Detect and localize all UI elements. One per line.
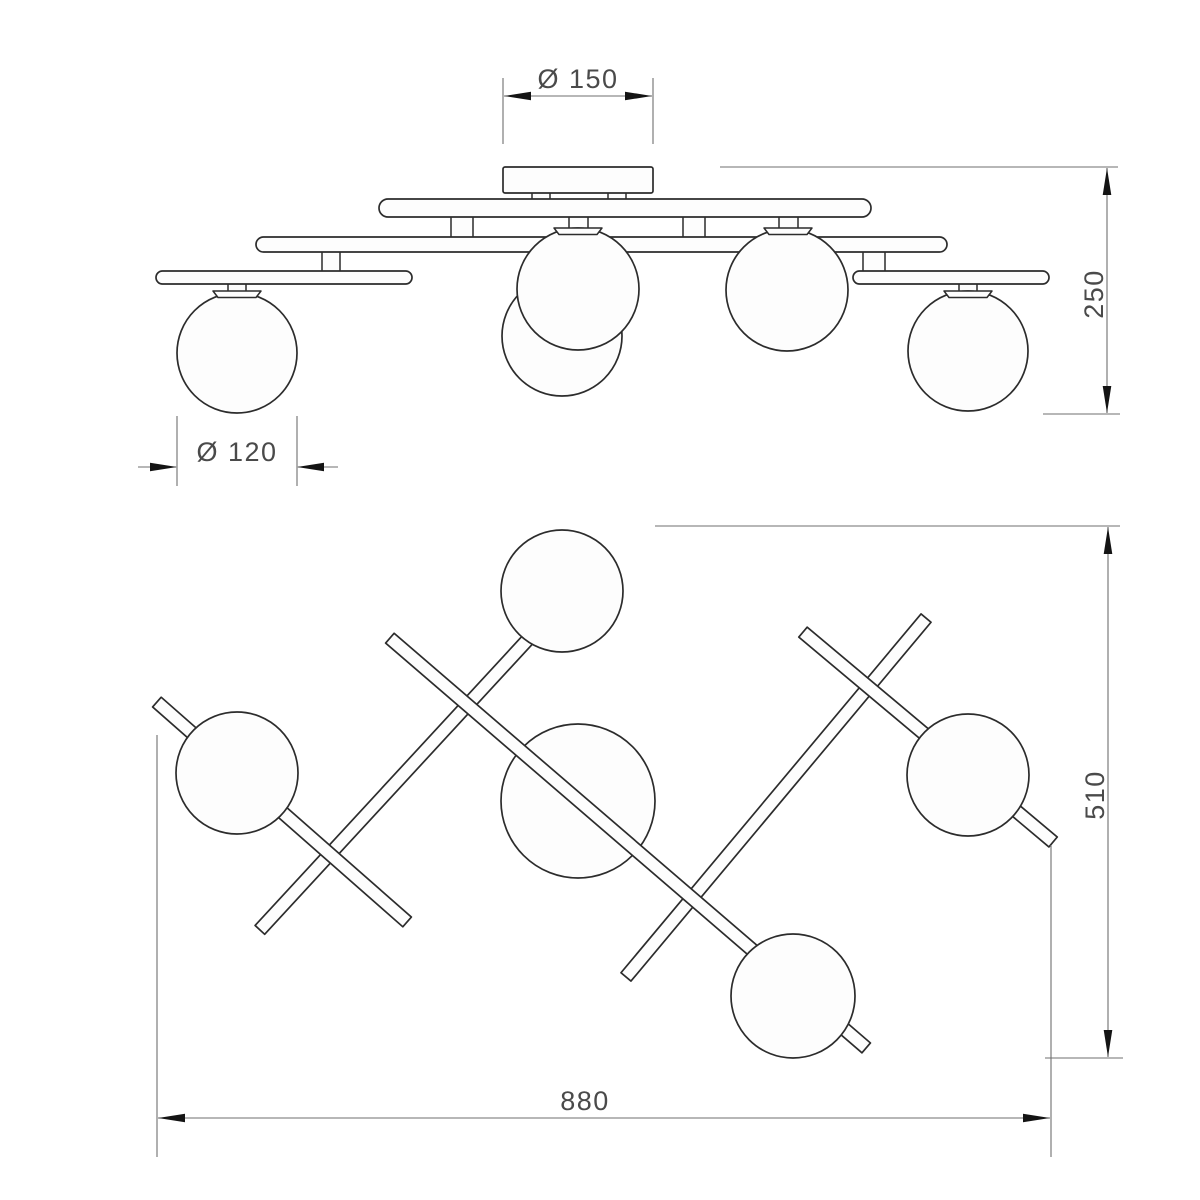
rod-bar-lower-left [156, 271, 412, 284]
dimension-canopy-diameter: Ø 150 [503, 64, 653, 144]
height-label: 250 [1079, 269, 1109, 319]
arrowhead-up-icon [1103, 168, 1112, 195]
globe-cap [554, 228, 602, 235]
globe-elevation-left [177, 293, 297, 413]
globe-cap [944, 291, 992, 298]
arrowhead-right-icon [625, 92, 652, 101]
globe-elevation-middle-front [517, 228, 639, 350]
ceiling-canopy [503, 167, 653, 193]
globe-cap [764, 228, 812, 235]
globe-elevation-center-right [726, 229, 848, 351]
width-label: 880 [560, 1086, 610, 1116]
arrowhead-down-icon [1104, 1030, 1113, 1057]
arrowhead-right-icon [150, 463, 177, 472]
lamp-technical-drawing: Ø 150 250 Ø 120 510 [0, 0, 1200, 1200]
arrowhead-right-icon [1023, 1114, 1050, 1123]
globe-elevation-right [908, 291, 1028, 411]
globe-plan-bottom [731, 934, 855, 1058]
globe-cap [213, 291, 261, 298]
arrowhead-up-icon [1104, 527, 1113, 554]
globe-plan-top [501, 530, 623, 652]
globe-plan-left [176, 712, 298, 834]
plan-view [153, 530, 1058, 1058]
globe-plan-right [907, 714, 1029, 836]
front-elevation-view [156, 167, 1049, 413]
dimension-globe-diameter: Ø 120 [138, 416, 338, 486]
rod-bar-lower-right [853, 271, 1049, 284]
arrowhead-down-icon [1103, 386, 1112, 413]
canopy-diameter-label: Ø 150 [537, 64, 618, 94]
arrowhead-left-icon [158, 1114, 185, 1123]
globe-diameter-label: Ø 120 [196, 437, 277, 467]
drawing-canvas: Ø 150 250 Ø 120 510 [0, 0, 1200, 1200]
dimension-depth: 510 [655, 526, 1123, 1058]
rod-bar-top [379, 199, 871, 217]
plan-rod-middle-ne [621, 614, 931, 981]
dimensions: Ø 150 250 Ø 120 510 [138, 64, 1123, 1157]
arrowhead-left-icon [297, 463, 324, 472]
arrowhead-left-icon [504, 92, 531, 101]
depth-label: 510 [1080, 770, 1110, 820]
